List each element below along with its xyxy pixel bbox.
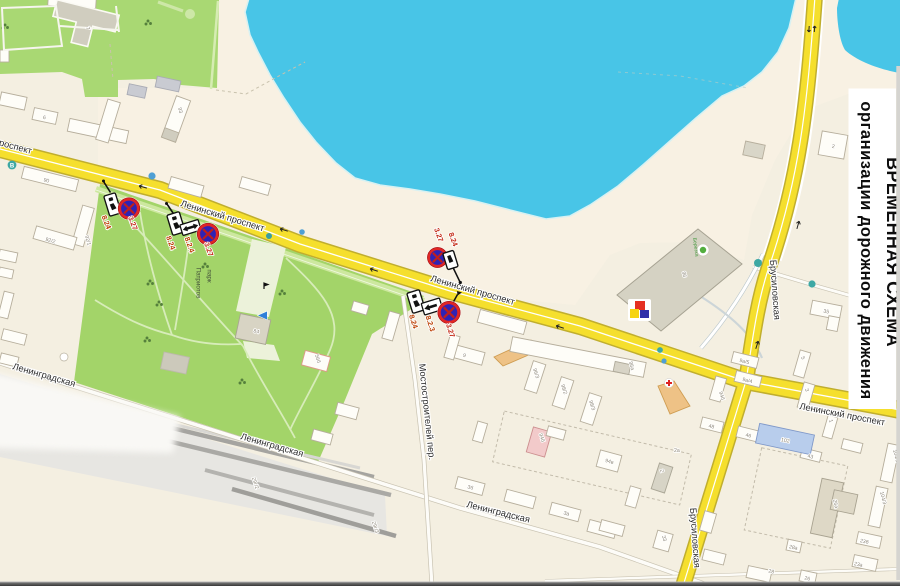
svg-text:парк: парк xyxy=(206,269,213,282)
svg-text:организации дорожного движения: организации дорожного движения xyxy=(857,101,875,399)
svg-text:Патриотов: Патриотов xyxy=(195,268,202,299)
svg-text:2а: 2а xyxy=(674,448,680,454)
svg-text:В: В xyxy=(10,164,15,170)
